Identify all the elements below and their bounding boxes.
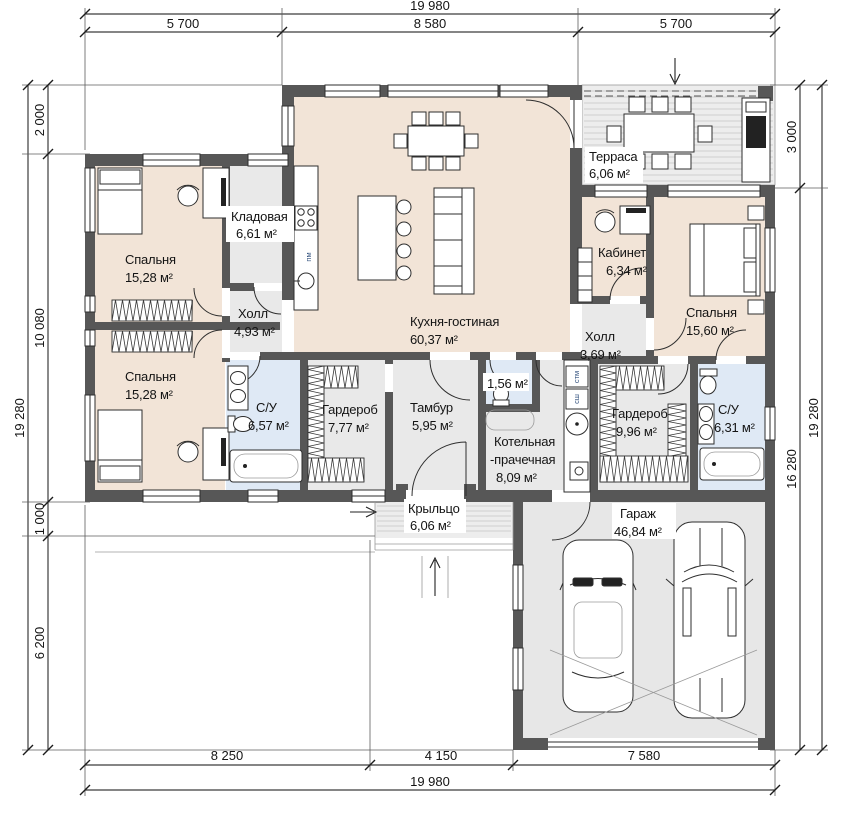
window [668, 185, 760, 197]
room-area: 1,56 м² [487, 376, 529, 391]
window [595, 185, 647, 197]
window [352, 490, 385, 502]
bookshelf [578, 248, 592, 302]
window [388, 85, 498, 97]
double-sink [228, 366, 248, 410]
room-area: 6,31 м² [714, 420, 756, 435]
window [85, 168, 95, 232]
room-area: 5,95 м² [412, 418, 454, 433]
room-label: С/У [718, 402, 740, 417]
double-bed [690, 224, 760, 296]
porch-entry-arrow [430, 558, 440, 596]
bathtub [230, 450, 302, 482]
room-area: 7,77 м² [328, 420, 370, 435]
window [765, 407, 775, 440]
double-sink [698, 404, 714, 444]
bed [98, 410, 142, 482]
room-area: 3,69 м² [580, 347, 622, 362]
closet-bottom-bedroom [112, 331, 193, 352]
window [143, 154, 200, 166]
window [513, 648, 523, 690]
room-area: 6,34 м² [606, 263, 648, 278]
dim-total-bottom: 19 980 [410, 774, 450, 789]
room-label: Котельная [494, 434, 555, 449]
window [85, 330, 95, 346]
room-label: Спальня [686, 305, 737, 320]
porch-side-arrow [350, 507, 376, 517]
window [85, 296, 95, 312]
desk [203, 428, 229, 480]
room-label-group: Гараж 46,84 м² [612, 503, 676, 539]
room-area: 8,09 м² [496, 470, 538, 485]
dim-total-left: 19 280 [12, 398, 27, 438]
window [325, 85, 380, 97]
washer-label: стм [572, 371, 581, 383]
window [513, 565, 523, 610]
closet-top-bedroom [112, 300, 193, 321]
room-label: Тамбур [410, 400, 453, 415]
dim-segment: 16 280 [784, 449, 799, 489]
room-label: Спальня [125, 252, 176, 267]
room-area: 4,93 м² [234, 324, 276, 339]
room-label-group: Терраса 6,06 м² [585, 147, 643, 183]
window [248, 490, 278, 502]
dim-total-right: 19 280 [806, 398, 821, 438]
room-area: 6,06 м² [410, 518, 452, 533]
room-area: 46,84 м² [614, 524, 663, 539]
dim-segment: 5 700 [167, 16, 200, 31]
room-label: Спальня [125, 369, 176, 384]
grill [742, 98, 770, 182]
room-area: 6,61 м² [236, 226, 278, 241]
room-label: Кладовая [231, 209, 288, 224]
room-label: Кухня-гостиная [410, 314, 499, 329]
window [143, 490, 200, 502]
room-label: Кабинет [598, 245, 646, 260]
laundry-sink [570, 462, 588, 480]
room-area: 60,37 м² [410, 332, 459, 347]
room-area: 6,57 м² [248, 418, 290, 433]
room-label: Гардероб [322, 402, 378, 417]
room-label: Гараж [620, 506, 656, 521]
dim-segment: 3 000 [784, 121, 799, 154]
sofa [434, 188, 474, 294]
room-label: Терраса [589, 149, 638, 164]
window [282, 106, 294, 146]
car-suv [666, 522, 753, 718]
dryer-label: сш [572, 394, 581, 404]
dim-segment: 6 200 [32, 627, 47, 660]
room-label: Холл [238, 306, 268, 321]
room-label-group: Крыльцо 6,06 м² [404, 499, 466, 533]
dim-segment: 5 700 [660, 16, 693, 31]
nightstand [748, 300, 764, 314]
room-area: 15,60 м² [686, 323, 735, 338]
room-label: Крыльцо [408, 501, 460, 516]
nightstand [748, 206, 764, 220]
room-label-group: 1,56 м² [483, 373, 529, 391]
bed [98, 168, 142, 234]
room-area: 6,06 м² [589, 166, 631, 181]
office-desk [620, 206, 650, 234]
toilet [700, 369, 717, 394]
dim-segment: 7 580 [628, 748, 661, 763]
dim-segment: 2 000 [32, 104, 47, 137]
floor-plan-svg: пм стм [0, 0, 867, 818]
window [85, 395, 95, 461]
window [248, 154, 288, 166]
dishwasher-label: пм [304, 252, 313, 261]
dimensions-right: 3 000 16 280 19 280 [770, 80, 828, 755]
car-sedan [560, 540, 636, 712]
room-label: Гардероб [612, 406, 668, 421]
room-label: -прачечная [490, 452, 555, 467]
stove [295, 206, 317, 230]
window [765, 228, 775, 292]
dim-segment: 1 000 [32, 503, 47, 536]
bathtub [700, 448, 764, 480]
dim-total-top: 19 980 [410, 0, 450, 13]
terrace-entry-arrow [670, 58, 680, 84]
desk [203, 168, 229, 218]
kitchen-counter [294, 166, 318, 310]
room-label: С/У [256, 400, 278, 415]
room-area: 9,96 м² [616, 424, 658, 439]
dim-segment: 8 580 [414, 16, 447, 31]
room-area: 15,28 м² [125, 387, 174, 402]
window [500, 85, 548, 97]
room-area: 15,28 м² [125, 270, 174, 285]
floor-plan-drawing: пм стм [0, 0, 867, 818]
dim-segment: 10 080 [32, 308, 47, 348]
room-label-group: Кладовая 6,61 м² [226, 206, 294, 242]
room-label: Холл [585, 329, 615, 344]
